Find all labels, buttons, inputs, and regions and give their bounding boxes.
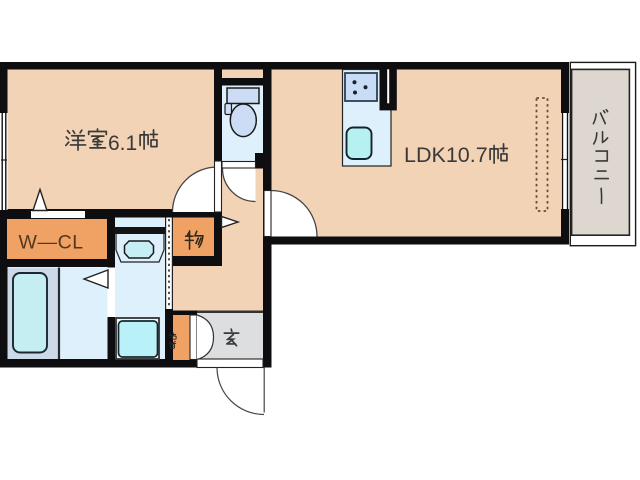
svg-text:LDK10.7: LDK10.7 [404, 143, 488, 167]
svg-text:W―CL: W―CL [19, 232, 84, 254]
svg-text:6.1: 6.1 [108, 132, 137, 155]
